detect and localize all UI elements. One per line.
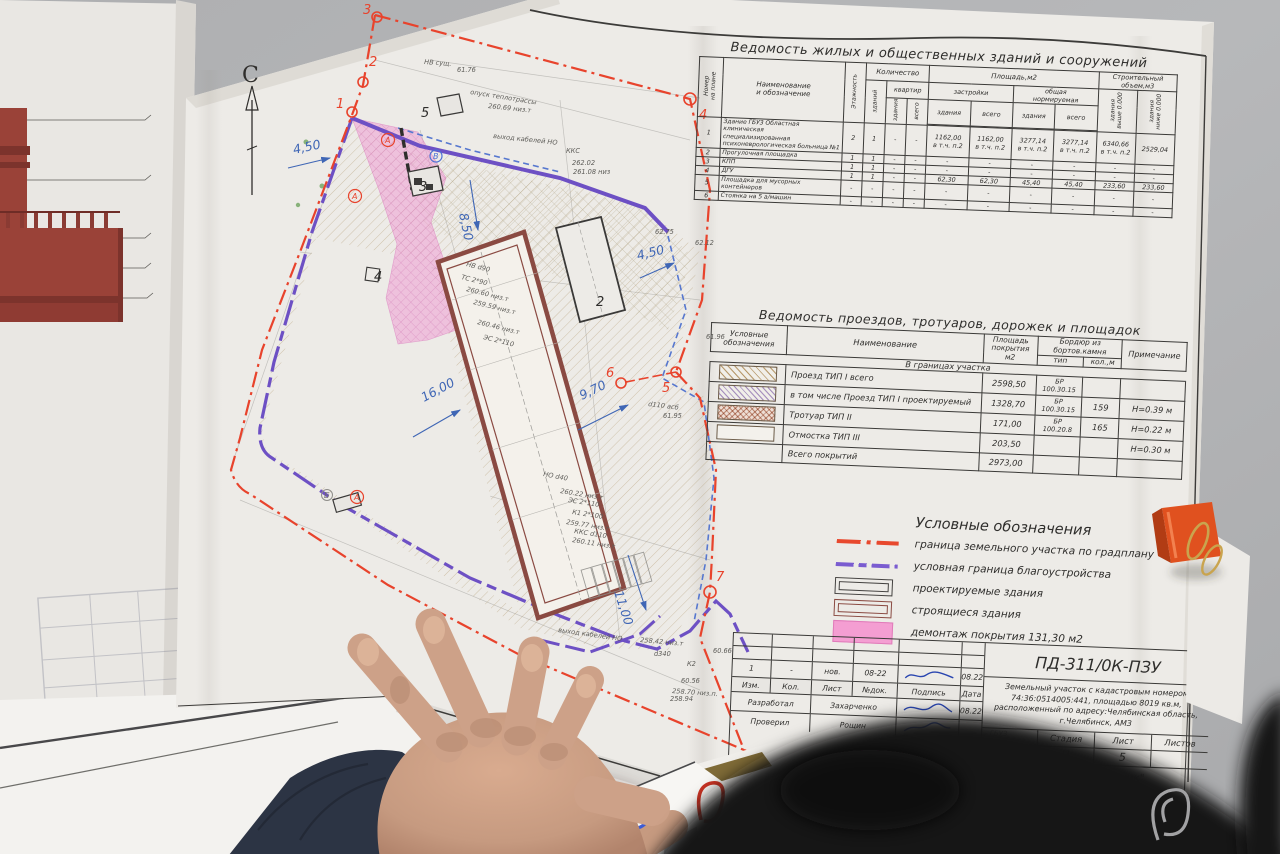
site-description: Земельный участок с кадастровым номером … xyxy=(982,677,1210,737)
svg-text:К2: К2 xyxy=(687,660,696,668)
svg-text:А: А xyxy=(353,493,359,502)
pavement-swatch xyxy=(717,385,776,402)
svg-text:62.75: 62.75 xyxy=(655,228,674,236)
svg-text:2: 2 xyxy=(369,55,377,70)
svg-text:262.02: 262.02 xyxy=(572,159,595,167)
svg-text:В: В xyxy=(433,152,439,161)
signature xyxy=(898,666,962,686)
col-floors: Этажность xyxy=(851,74,859,109)
pavement-swatch xyxy=(718,365,777,382)
svg-text:60.56: 60.56 xyxy=(681,677,700,685)
signature xyxy=(896,718,960,739)
legend: Условные обозначения граница земельного … xyxy=(832,512,1189,657)
title-block: 1 - нов. 08-22 08.22 Изм. Кол. Лист №док… xyxy=(727,632,1190,792)
svg-text:5: 5 xyxy=(421,106,429,121)
photo-of-site-plan: 1 2 3 4 5 6 7 2 3 4 5 А А В А Б xyxy=(0,0,1280,854)
red-boundary-swatch xyxy=(836,532,899,553)
developer-name: Захарченко xyxy=(811,695,898,716)
svg-text:258.94: 258.94 xyxy=(670,695,693,703)
svg-text:А: А xyxy=(351,192,357,201)
svg-text:3: 3 xyxy=(419,180,427,195)
svg-text:261.08 низ: 261.08 низ xyxy=(573,168,611,176)
svg-text:5: 5 xyxy=(662,381,670,396)
pavements-register-rows: Проезд ТИП I всего 2598,50 БР 100.30.15 … xyxy=(706,362,1186,480)
svg-text:А: А xyxy=(384,136,390,145)
checker-name: Рощин xyxy=(810,714,897,735)
svg-text:4: 4 xyxy=(374,270,382,285)
svg-text:61.76: 61.76 xyxy=(457,66,476,74)
col-name: Наименование и обозначение xyxy=(721,57,846,122)
checker-label: Проверил xyxy=(730,711,811,732)
signature xyxy=(897,699,961,720)
svg-text:62.12: 62.12 xyxy=(695,239,714,247)
col-number: Номер на плане xyxy=(703,71,718,100)
svg-text:ККС: ККС xyxy=(566,147,580,155)
buildings-register-table: Номер на плане Наименование и обозначени… xyxy=(694,56,1178,218)
svg-text:1: 1 xyxy=(336,97,344,112)
pavements-register-table: Условные обозначения Наименование Площад… xyxy=(705,322,1187,480)
svg-text:60.66: 60.66 xyxy=(713,647,732,655)
svg-text:61.95: 61.95 xyxy=(663,412,682,420)
svg-text:6: 6 xyxy=(606,366,614,381)
pavement-swatch xyxy=(716,445,772,460)
revision-grid: 1 - нов. 08-22 08.22 Изм. Кол. Лист №док… xyxy=(728,633,985,783)
svg-text:7: 7 xyxy=(716,570,725,585)
svg-text:Б: Б xyxy=(324,491,330,500)
svg-text:d340: d340 xyxy=(654,650,671,658)
faint-text-fragment: контроль xyxy=(847,771,882,780)
constructing-building-swatch xyxy=(833,598,896,619)
pavement-swatch xyxy=(716,425,775,442)
projected-building-swatch xyxy=(834,576,897,597)
buildings-register: Ведомость жилых и общественных зданий и … xyxy=(694,36,1179,218)
buildings-register-rows: 1 Здание ГБУЗ Областная клиническая спец… xyxy=(694,116,1175,217)
svg-text:2: 2 xyxy=(596,295,604,310)
pavements-register: Ведомость проездов, тротуаров, дорожек и… xyxy=(705,302,1188,480)
developer-label: Разработал xyxy=(731,692,812,713)
svg-text:С: С xyxy=(242,63,259,88)
pavement-swatch xyxy=(717,405,776,422)
object-name-faint: ГБУЗ клиническая ологическая xyxy=(981,728,1039,762)
svg-text:3: 3 xyxy=(363,3,371,18)
violet-boundary-swatch xyxy=(835,554,898,575)
